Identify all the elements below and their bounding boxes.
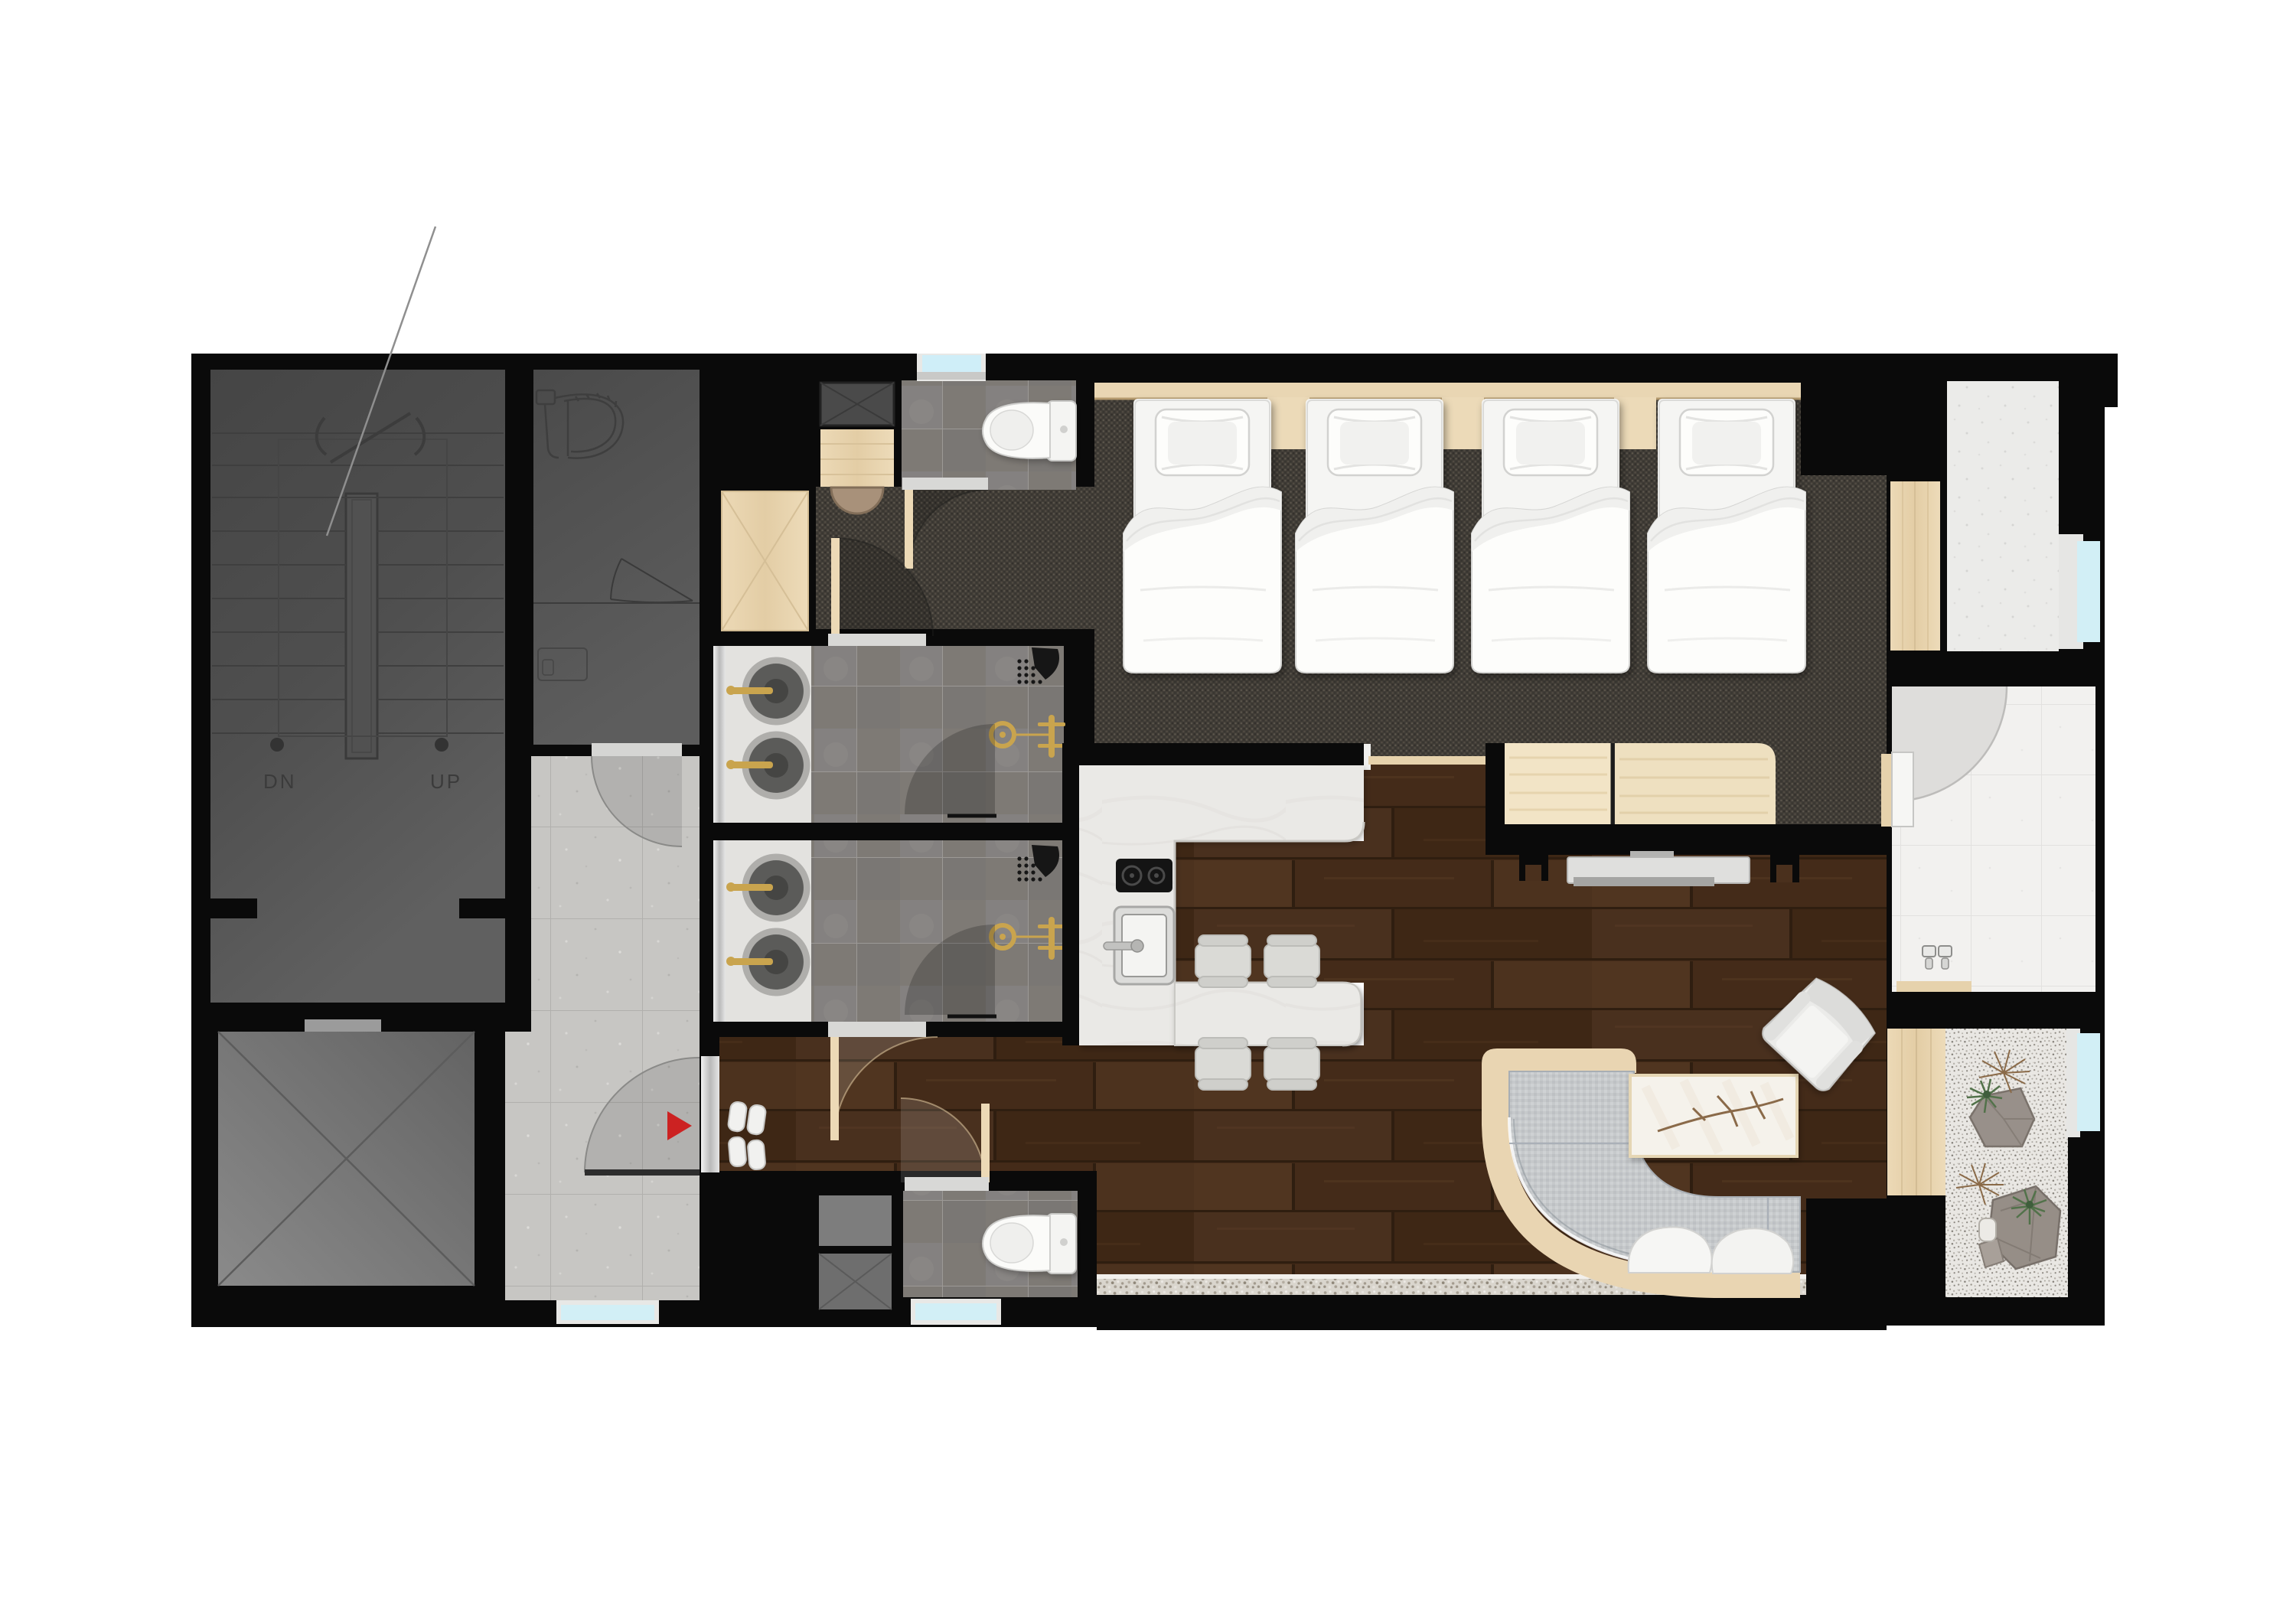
svg-text:UP: UP	[430, 770, 462, 793]
svg-text:DN: DN	[263, 770, 297, 793]
